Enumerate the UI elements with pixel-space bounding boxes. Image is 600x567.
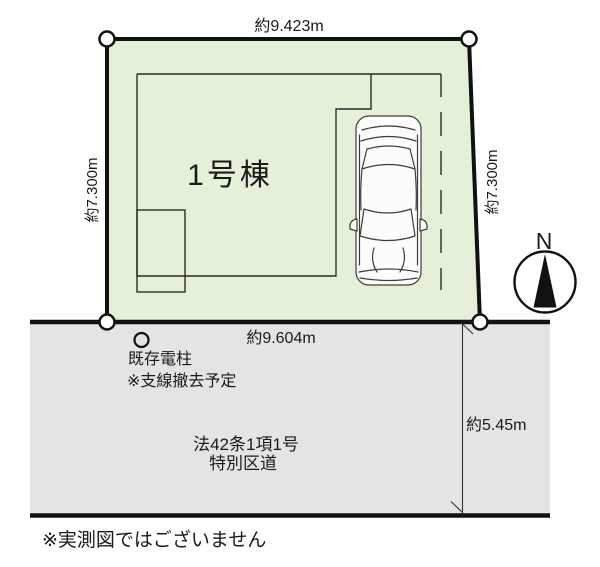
- compass: N: [515, 228, 576, 313]
- dimension-label-left: 約7.300m: [84, 157, 101, 222]
- disclaimer-text: ※実測図ではございません: [42, 528, 266, 551]
- utility-pole-label: 既存電柱: [128, 350, 192, 368]
- site-plan-diagram: N 約9.423m 約7.300m 約7.300m 約9.604m 約5.45m…: [0, 0, 600, 562]
- road-type-label: 特別区道: [209, 454, 277, 473]
- dimension-label-top: 約9.423m: [254, 17, 323, 35]
- compass-label: N: [536, 228, 553, 254]
- corner-marker-bottom-right: [473, 315, 488, 330]
- frontage-dimension-label: 約9.604m: [246, 329, 315, 347]
- corner-marker-top-right: [462, 32, 477, 47]
- car-illustration: [350, 116, 427, 285]
- building-label: 1号棟: [187, 159, 273, 192]
- corner-marker-bottom-left: [100, 315, 115, 330]
- utility-pole-note: ※支線撤去予定: [127, 372, 236, 390]
- lot-boundary: [107, 39, 480, 322]
- car-windshield: [360, 209, 415, 241]
- dimension-label-right: 約7.300m: [484, 149, 501, 214]
- road-classification-label: 法42条1項1号: [193, 435, 299, 454]
- corner-marker-top-left: [100, 32, 115, 47]
- road-width-label: 約5.45m: [466, 416, 526, 434]
- car-body: [356, 116, 421, 285]
